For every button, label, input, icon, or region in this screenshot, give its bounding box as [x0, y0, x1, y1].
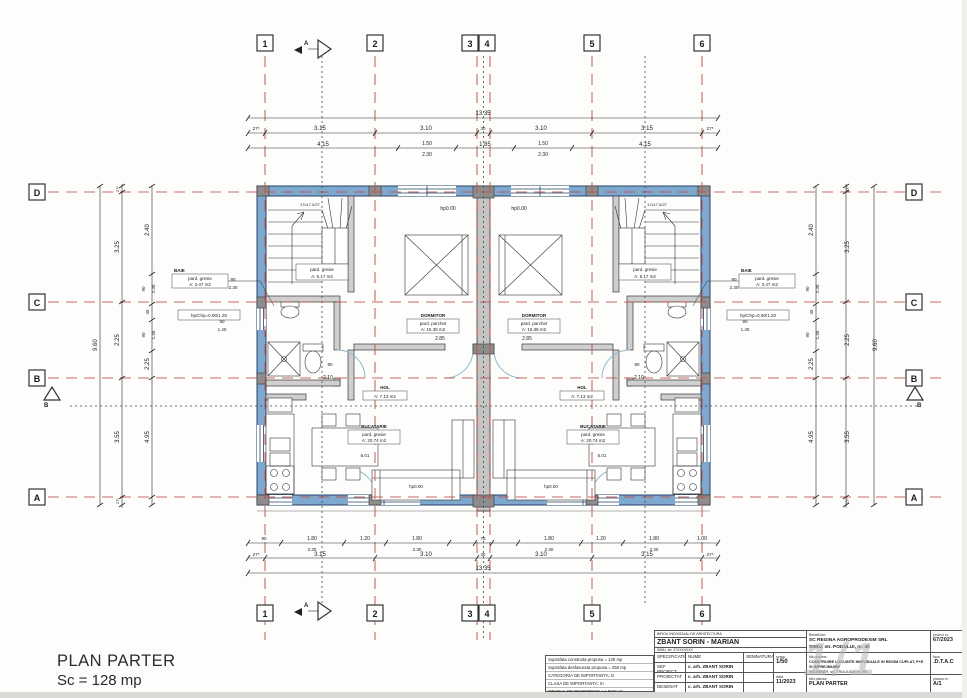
axis-grid [48, 56, 944, 640]
dim: 27⁵ [845, 186, 850, 192]
room-finish: pard. gresie [310, 267, 334, 272]
dim: 3.15 [641, 126, 653, 132]
dim: 1.20 [360, 536, 370, 542]
scara-cell: scara 1/50 [773, 652, 806, 673]
room-name: BUCATARIE [580, 424, 606, 429]
axis-row-label: C [911, 298, 918, 308]
interior-wall [348, 350, 354, 400]
room-finish: pard. gresie [755, 276, 779, 281]
note-line: CATEGORIA DE IMPORTANTA: D [546, 672, 653, 680]
dim: 30 [480, 552, 486, 557]
dim: 4.15 [317, 142, 329, 148]
dim: 3.25 [115, 241, 121, 253]
room-finish: pard. gresie [581, 432, 605, 437]
faza-value: .D.T.A.C [933, 659, 954, 665]
axis-col-label: 6 [699, 39, 704, 49]
section-a-arrow-icon [318, 602, 331, 620]
room-name: BAIE [741, 268, 752, 273]
dim: 1.80 [649, 536, 659, 542]
bed-icon [405, 235, 468, 295]
stair-note: 17x17.5/27 [300, 202, 321, 207]
plansa-nr-cell: plansa nr. A/1 [930, 674, 963, 694]
fridge-icon [268, 398, 292, 412]
section-a-arrow-icon [294, 46, 302, 54]
note-line: CLASA DE IMPORTANTA: III [546, 680, 653, 688]
titlu-plansa-value: PLAN PARTER [809, 681, 848, 687]
section-a-label: A [304, 41, 309, 47]
room-area: A: 5.17 m2 [634, 274, 656, 279]
room-name: BAIE [174, 268, 185, 273]
col-semnatura: SEMNATURA [743, 652, 773, 662]
dim: 27⁵ [707, 126, 714, 131]
washbasin-icon [281, 302, 299, 318]
note-line: Suprafata desfasurata propusa = 256 mp [546, 664, 653, 672]
sheet-edge-bottom [0, 692, 967, 698]
room-area: A: 7.13 m2 [571, 394, 593, 399]
dim-overall-right: 9.60 [873, 339, 879, 351]
dim: 27⁵ [253, 126, 260, 131]
section-a-label: A [304, 603, 309, 609]
room-area: A: 15.38 m2 [522, 327, 547, 332]
room-area: A: 15.38 m2 [421, 327, 446, 332]
titlu-proiect-line2: SI IMPREJMUIRE [809, 665, 840, 669]
axis-row-label: B [34, 374, 41, 384]
parapet-note: hp/Chp=0.90/1.20 [740, 313, 776, 318]
interior-wall [266, 296, 340, 302]
dwelling-unit-geometry [257, 186, 484, 511]
axis-col-label: 2 [372, 609, 377, 619]
dim: 3.55 [845, 431, 851, 443]
dim-overall-top: 13.35 [475, 111, 491, 117]
dim-overall-left: 9.60 [93, 339, 99, 351]
dim: 1.50 [422, 141, 432, 147]
dim: 3.25 [845, 241, 851, 253]
plan-title: PLAN PARTER [57, 652, 176, 671]
dim: 3.15 [314, 552, 326, 558]
row-proiectat: PROIECTAT [655, 672, 685, 682]
dim: 2.30 [815, 284, 820, 293]
axis-col-label: 2 [372, 39, 377, 49]
dim: 90 [141, 332, 146, 338]
room-name: DORMITOR [421, 313, 446, 318]
scara-value: 1/50 [776, 659, 788, 665]
sheet-edge-right [962, 0, 967, 698]
titlu-proiect-line1: CONSTRUIRE LOCUINTE INDIVIDUALE IN REGIM… [809, 660, 923, 664]
dim: 3.10 [420, 552, 432, 558]
axis-col-label: 3 [467, 609, 472, 619]
wardrobe-icon [452, 420, 474, 478]
toilet-icon [303, 344, 323, 373]
room-finish: pard. gresie [188, 276, 212, 281]
axis-row-label: B [911, 374, 918, 384]
section-b-label: B [44, 403, 49, 409]
axis-col-label: 4 [484, 609, 489, 619]
section-b-arrow-icon [44, 387, 60, 400]
sef-proiect-name: c. arh. ZBANT SORIN [685, 662, 743, 672]
room-finish: pard. parchet [420, 321, 447, 326]
dim: 2.40 [145, 224, 151, 236]
dim: 2.30 [422, 152, 432, 158]
col-specificatie: SPECIFICATIE [655, 652, 685, 662]
dim: 1.40 [741, 327, 750, 332]
interior-wall [354, 344, 445, 350]
room-area: A: 20.74 m2 [581, 438, 606, 443]
signature-cell [743, 662, 773, 672]
room-finish: pard. gresie [362, 432, 386, 437]
dim: 2.10 [323, 375, 333, 381]
axis-col-label: 5 [589, 609, 594, 619]
room-area: A: 20.74 m2 [362, 438, 387, 443]
dim: 80 [327, 362, 333, 367]
axis-col-label: 3 [467, 39, 472, 49]
dim: 27⁵ [253, 552, 260, 557]
floor-plan-drawing: 1 2 3 4 5 6 1 2 3 4 5 6 D C B A D C B A … [0, 0, 967, 698]
room-name: HOL [380, 385, 390, 390]
dim: 2.30 [229, 285, 238, 290]
dim: 1.20 [596, 536, 606, 542]
proiectat-name: c. arh. ZBANT SORIN [685, 672, 743, 682]
note-line: Suprafata construita propusa = 128 mp [546, 656, 653, 664]
dim: 1.00 [697, 536, 707, 542]
axis-col-label: 6 [699, 609, 704, 619]
dim: 1.80 [544, 536, 554, 542]
section-b-arrow-icon [907, 387, 923, 400]
axis-col-label: 1 [262, 609, 267, 619]
dim: 1.85 [479, 142, 491, 148]
beneficiar-cell: Beneficiar: SC REGINA AGROPRODEXIM SRL S… [806, 631, 930, 652]
beneficiar-label: Beneficiar: [809, 633, 826, 637]
door-arc [445, 350, 473, 378]
beneficiar-line1: SC REGINA AGROPRODEXIM SRL [809, 638, 888, 643]
section-a-arrow-icon [294, 608, 302, 616]
titlu-proiect-cell: titlu proiect: CONSTRUIRE LOCUINTE INDIV… [806, 652, 930, 674]
plansa-nr-value: A/1 [933, 681, 942, 687]
dim: 1.50 [538, 141, 548, 147]
dim: 90 [805, 332, 810, 338]
section-b-label: B [917, 403, 922, 409]
dim: 90 [141, 286, 146, 292]
dim: 4.15 [639, 142, 651, 148]
shower-icon [268, 342, 300, 376]
parapet-note: hp/Chp=0.90/1.20 [191, 313, 227, 318]
section-a-arrow-icon [318, 40, 331, 58]
dim: 4.95 [809, 431, 815, 443]
dim: 27⁵ [115, 186, 120, 192]
dim: 80 [634, 362, 640, 367]
dim: 1.40 [218, 327, 227, 332]
axis-row-label: C [34, 298, 41, 308]
room-area: A: 3.47 m2 [189, 282, 211, 287]
dim: 2.40 [809, 224, 815, 236]
section-lines [70, 56, 920, 640]
room-area: A: 7.13 m2 [374, 394, 396, 399]
dim: 75 [480, 536, 486, 541]
dim: 2.30 [538, 152, 548, 158]
dim: 27⁵ [707, 552, 714, 557]
dim: 2.85 [522, 336, 532, 342]
dim: 27⁵ [115, 498, 120, 504]
dim: 1.80 [307, 536, 317, 542]
room-name: HOL [577, 385, 587, 390]
dim: 3.15 [314, 126, 326, 132]
room-area: A: 3.47 m2 [756, 282, 778, 287]
level-marker: hp0.00 [440, 206, 456, 212]
dim: 6.01 [361, 453, 370, 458]
dim: 2.30 [730, 285, 739, 290]
axis-row-label: A [911, 493, 918, 503]
proiect-nr-value: 67/2023 [933, 637, 953, 643]
dim: 1.40 [815, 330, 820, 339]
dim: 3.15 [641, 552, 653, 558]
dim: 3.10 [535, 126, 547, 132]
axis-col-label: 1 [262, 39, 267, 49]
axis-row-label: A [34, 493, 41, 503]
data-value: 11/2023 [776, 679, 796, 685]
stair-note: 17x17.5/27 [647, 202, 668, 207]
axis-row-label: D [911, 188, 918, 198]
axis-markers: 1 2 3 4 5 6 1 2 3 4 5 6 D C B A D C B A [29, 35, 922, 621]
level-marker: hp0.00 [409, 484, 423, 489]
column [257, 186, 269, 196]
interior-wall [334, 302, 340, 350]
kitchen-counter-icon [266, 398, 294, 494]
dim: 2.25 [145, 358, 151, 370]
dim: 90 [805, 286, 810, 292]
row-sef-proiect: SEF PROIECT [655, 662, 685, 672]
room-finish: pard. parchet [521, 321, 548, 326]
dim: 45 [145, 309, 150, 315]
dim: 27⁵ [845, 498, 850, 504]
dim: 2.85 [435, 336, 445, 342]
notes-block: Suprafata construita propusa = 128 mp Su… [545, 655, 654, 692]
title-block: BIROU INDIVIDUAL DE ARHITECTURA ZBANT SO… [654, 630, 964, 694]
beneficiar-line2: SIBIU, str. PODULUI, nr. 40 [809, 645, 870, 650]
dim: 3.55 [115, 431, 121, 443]
col-nume: NUME [685, 652, 743, 662]
signature-cell [743, 672, 773, 682]
dim: 6.01 [598, 453, 607, 458]
titlu-proiect-label: titlu proiect: [809, 655, 827, 659]
dim: 2.25 [845, 334, 851, 346]
drawing-sheet: 1 2 3 4 5 6 1 2 3 4 5 6 D C B A D C B A … [0, 0, 967, 698]
office-name: ZBANT SORIN - MARIAN [655, 637, 806, 647]
data-cell: data 11/2023 [773, 672, 806, 693]
dim: 1.80 [412, 536, 422, 542]
dim: 2.25 [809, 358, 815, 370]
faza-cell: faza .D.T.A.C [930, 652, 963, 674]
room-finish: pard. gresie [633, 267, 657, 272]
dwelling-unit-mirrored [483, 186, 710, 511]
room-name: DORMITOR [522, 313, 547, 318]
dim: 30 [480, 126, 486, 131]
titlu-plansa-cell: titlu plansa: PLAN PARTER [806, 674, 930, 694]
room-name: BUCATARIE [361, 424, 387, 429]
level-marker: hp0.00 [544, 484, 558, 489]
dim: 1.40 [151, 330, 156, 339]
plan-area: Sc = 128 mp [57, 672, 142, 689]
dim: 3.10 [420, 126, 432, 132]
dim: 4.95 [145, 431, 151, 443]
dim: 3.10 [535, 552, 547, 558]
dim: 45 [809, 309, 814, 315]
dim: 2.30 [151, 284, 156, 293]
level-marker: hp0.00 [511, 206, 527, 212]
axis-col-label: 4 [484, 39, 489, 49]
room-area: A: 5.17 m2 [311, 274, 333, 279]
dim: 2.10 [634, 375, 644, 381]
dim-overall-bottom: 13.35 [475, 566, 491, 572]
dim: 2.25 [115, 334, 121, 346]
dim: 90 [261, 536, 267, 541]
proiect-nr-cell: proiect nr. 67/2023 [930, 631, 963, 652]
axis-row-label: D [34, 188, 41, 198]
axis-col-label: 5 [589, 39, 594, 49]
